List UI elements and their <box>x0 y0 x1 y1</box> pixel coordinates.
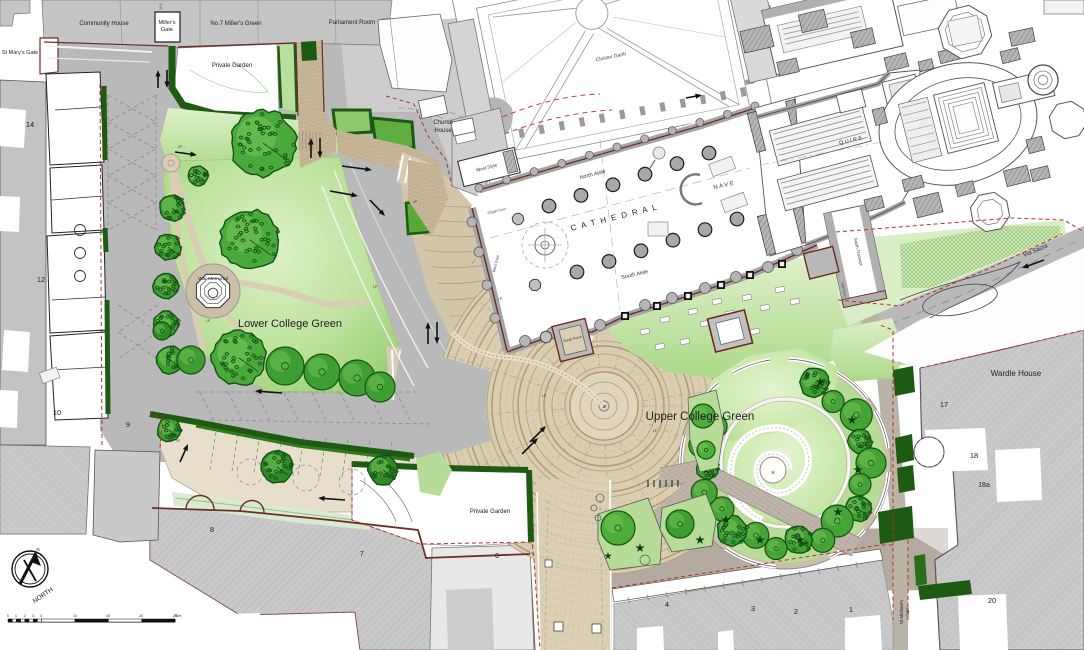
svg-text:20: 20 <box>988 596 996 605</box>
svg-text:Gate: Gate <box>161 27 173 33</box>
svg-text:War Memorial: War Memorial <box>198 276 228 282</box>
svg-text:2: 2 <box>24 614 26 618</box>
svg-text:Upper College Green: Upper College Green <box>646 411 755 423</box>
svg-text:LP: LP <box>653 429 658 433</box>
svg-text:St Michael's: St Michael's <box>899 599 904 624</box>
svg-text:15: 15 <box>106 614 110 618</box>
svg-text:4: 4 <box>665 600 669 609</box>
svg-text:7: 7 <box>360 549 364 558</box>
svg-text:No.7 Miller's Green: No.7 Miller's Green <box>210 21 261 27</box>
svg-text:LP: LP <box>178 145 183 149</box>
svg-text:Private Garden: Private Garden <box>470 509 510 515</box>
svg-text:M.G.: M.G. <box>159 2 163 9</box>
svg-text:4: 4 <box>40 614 42 618</box>
svg-text:LP: LP <box>373 285 378 289</box>
svg-text:20: 20 <box>139 614 143 618</box>
svg-text:18: 18 <box>970 451 978 460</box>
svg-text:LP: LP <box>206 319 211 323</box>
svg-text:3: 3 <box>32 614 34 618</box>
svg-text:Private Garden: Private Garden <box>212 63 252 69</box>
svg-text:10: 10 <box>73 614 77 618</box>
svg-text:18a: 18a <box>978 482 990 489</box>
svg-text:1: 1 <box>15 614 17 618</box>
svg-text:Lower College Green: Lower College Green <box>238 318 342 330</box>
svg-text:Gate: Gate <box>905 607 910 617</box>
svg-text:LP: LP <box>413 200 418 204</box>
svg-text:LP: LP <box>898 377 903 381</box>
svg-text:2: 2 <box>794 607 798 616</box>
svg-text:LP: LP <box>542 394 547 398</box>
svg-text:LP: LP <box>498 297 503 301</box>
svg-text:LP: LP <box>308 142 313 146</box>
svg-text:✶: ✶ <box>770 469 776 477</box>
svg-text:Parliament Room: Parliament Room <box>329 20 375 26</box>
svg-text:Wardle House: Wardle House <box>991 369 1042 378</box>
svg-text:0: 0 <box>7 614 9 618</box>
svg-text:12: 12 <box>37 275 45 284</box>
svg-text:N: N <box>36 547 39 552</box>
svg-text:6: 6 <box>495 551 499 560</box>
svg-text:House: House <box>434 128 452 134</box>
svg-text:LP: LP <box>176 439 181 443</box>
svg-text:Church: Church <box>433 120 452 126</box>
svg-text:17: 17 <box>940 400 948 409</box>
svg-text:St Mary's Gate: St Mary's Gate <box>2 50 38 56</box>
svg-text:3: 3 <box>751 604 755 613</box>
svg-text:10: 10 <box>53 408 61 417</box>
svg-text:14: 14 <box>26 120 34 129</box>
svg-text:8: 8 <box>210 525 214 534</box>
svg-text:1: 1 <box>849 605 853 614</box>
svg-text:Miller's: Miller's <box>159 20 176 26</box>
svg-text:Community House: Community House <box>79 21 129 27</box>
svg-text:9: 9 <box>126 420 130 429</box>
svg-text:30m: 30m <box>175 614 182 618</box>
